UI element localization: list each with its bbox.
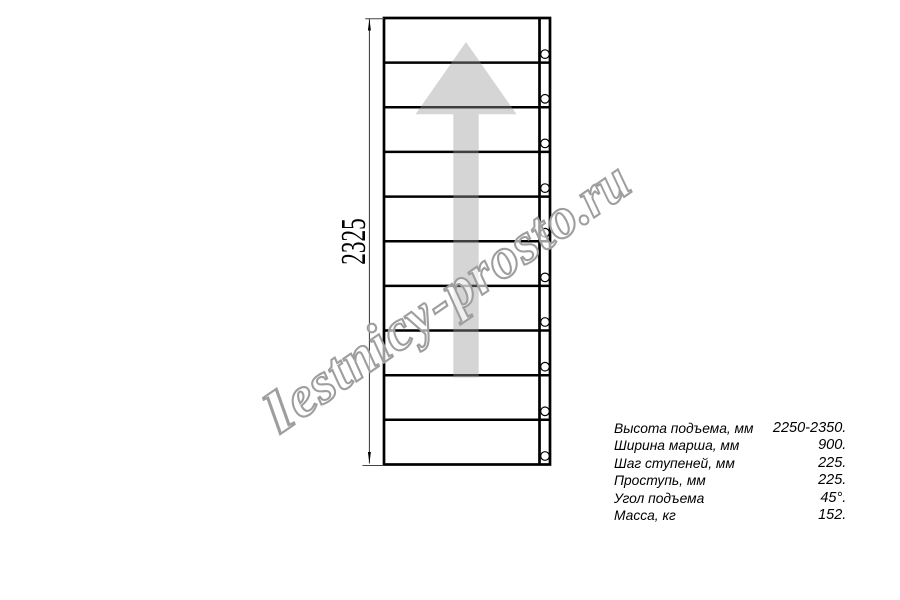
svg-text:2325: 2325 [334, 218, 373, 265]
svg-text:lestnicy-prosto.ru: lestnicy-prosto.ru [251, 149, 642, 446]
